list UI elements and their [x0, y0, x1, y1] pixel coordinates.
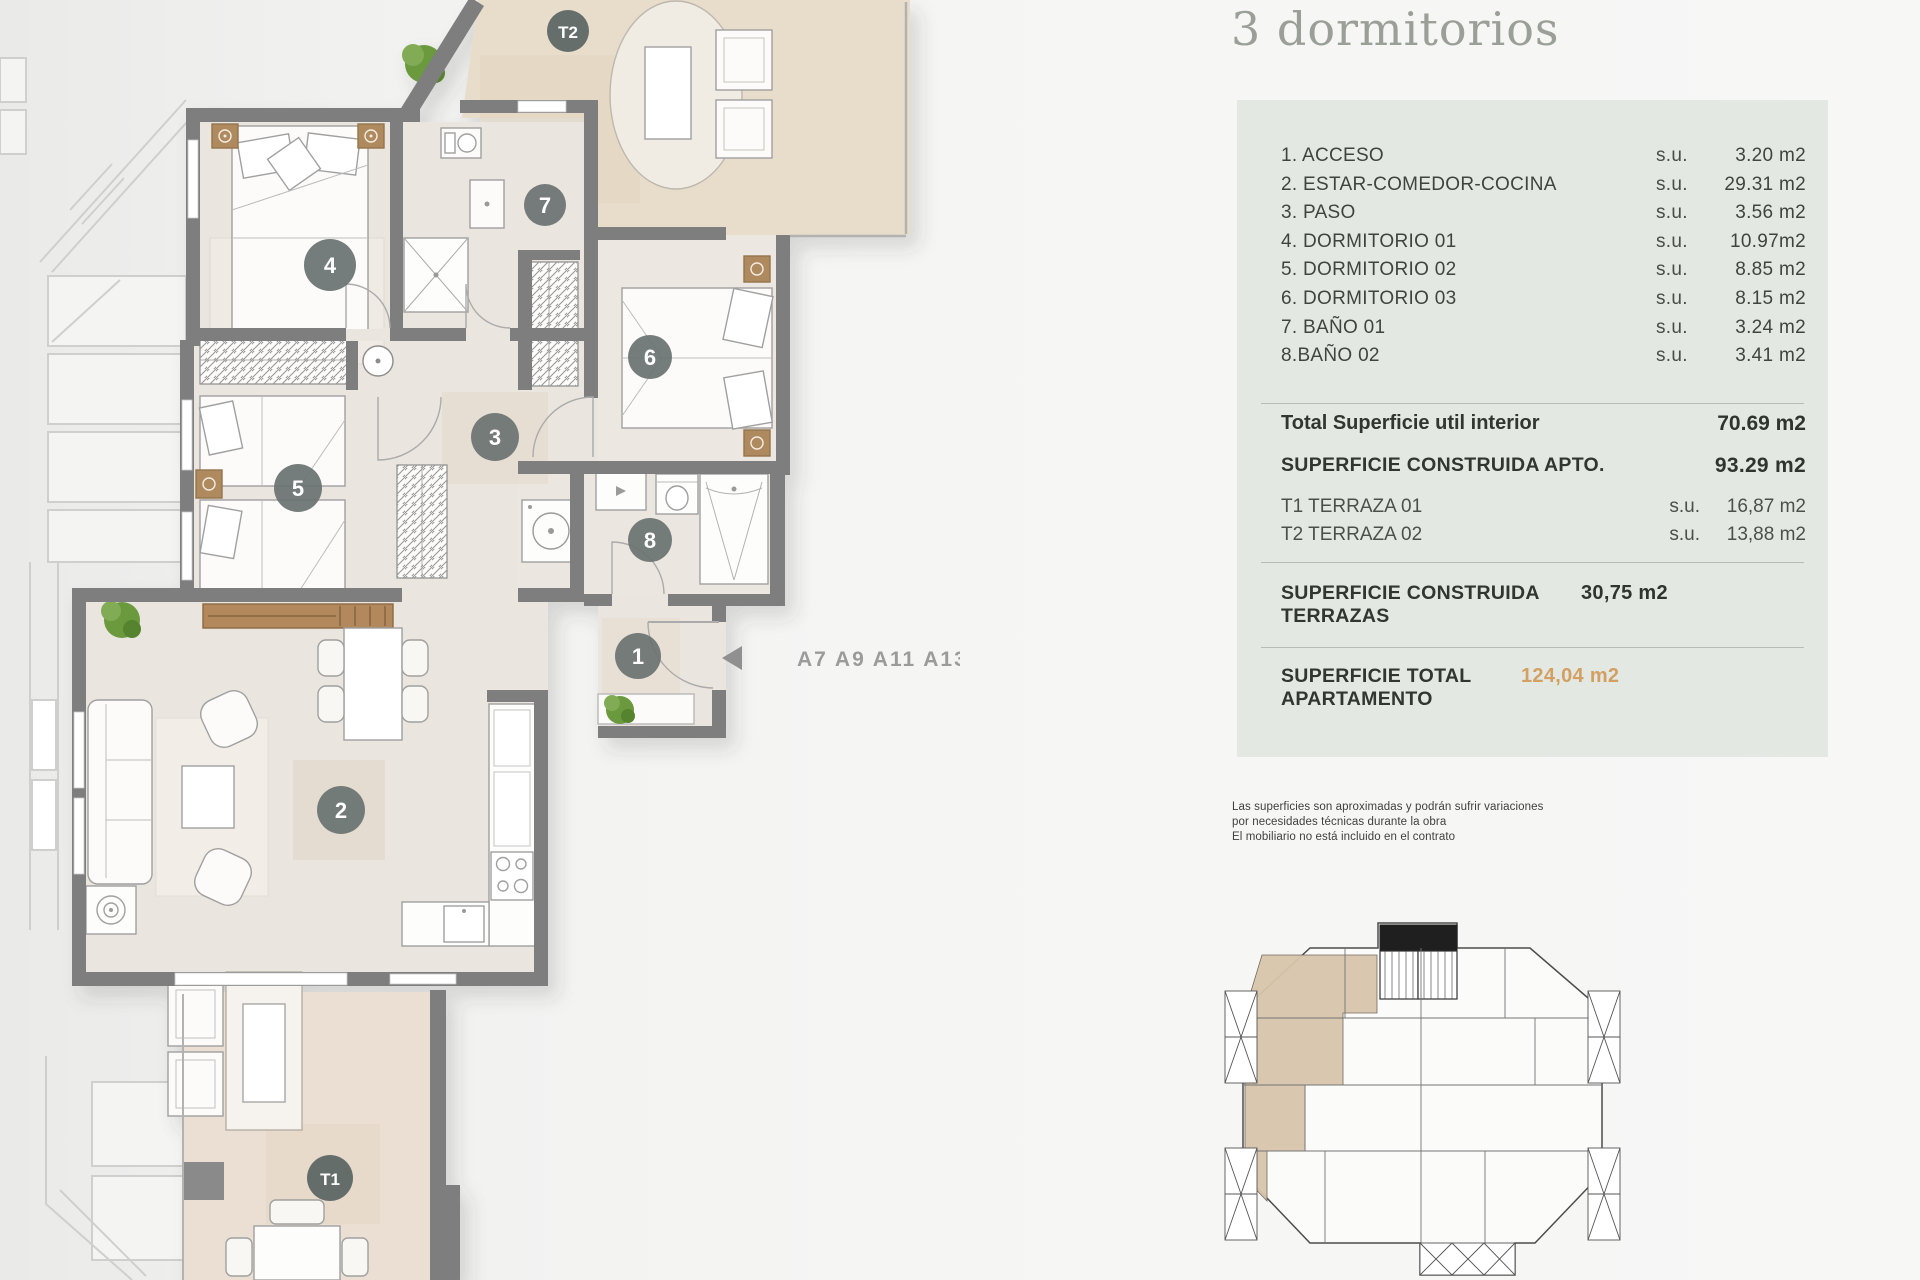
terrace-circle-t1: T1 — [307, 1155, 353, 1201]
svg-text:4: 4 — [324, 253, 337, 278]
table-row: 8.BAÑO 02 s.u. 3.41 m2 — [1281, 345, 1806, 374]
outdoor-table — [254, 1226, 340, 1280]
outdoor-chair — [226, 1238, 252, 1276]
nightstand — [196, 470, 222, 498]
sideboard — [203, 604, 393, 628]
elevator-core — [1380, 925, 1457, 999]
svg-text:8: 8 — [644, 528, 656, 553]
nightstand — [358, 124, 384, 148]
outdoor-table — [645, 47, 691, 139]
table-row: 1. ACCESO s.u. 3.20 m2 — [1281, 145, 1806, 174]
unit-pointer: A7 A9 A11 A13 — [722, 646, 960, 671]
room-circle-3: 3 — [471, 413, 519, 461]
table-row: 6. DORMITORIO 03 s.u. 8.15 m2 — [1281, 288, 1806, 317]
brochure-page: 1 2 3 4 5 6 7 8 — [0, 0, 1920, 1280]
svg-text:T2: T2 — [558, 23, 578, 42]
sun-lounger — [226, 972, 302, 1130]
room-circle-5: 5 — [274, 464, 322, 512]
total-interior-row: Total Superficie util interior 70.69 m2 — [1281, 412, 1806, 436]
room-area-list: 1. ACCESO s.u. 3.20 m2 2. ESTAR-COMEDOR-… — [1281, 145, 1806, 374]
area-table-card: 1. ACCESO s.u. 3.20 m2 2. ESTAR-COMEDOR-… — [1237, 100, 1828, 757]
terrace-circle-t2: T2 — [547, 10, 589, 52]
svg-text:7: 7 — [539, 193, 551, 218]
dining-chair — [318, 640, 344, 676]
toilet — [441, 128, 481, 158]
room-circle-1: 1 — [615, 633, 661, 679]
svg-text:1: 1 — [632, 644, 644, 669]
ceiling-lamp — [363, 346, 393, 376]
divider — [1261, 403, 1804, 404]
total-value: 124,04 m2 — [1521, 665, 1619, 688]
outdoor-mat — [184, 1162, 224, 1200]
wardrobe — [200, 336, 352, 384]
terraza-row: T1 TERRAZA 01 s.u. 16,87 m2 — [1281, 496, 1806, 518]
construida-terrazas-row: SUPERFICIE CONSTRUIDA TERRAZAS 30,75 m2 — [1281, 582, 1806, 628]
nightstand — [212, 124, 238, 148]
svg-text:T1: T1 — [320, 1170, 340, 1189]
shower — [700, 474, 768, 584]
building-key-plan — [1205, 893, 1640, 1280]
room-circle-6: 6 — [628, 335, 672, 379]
wardrobe — [397, 465, 447, 578]
nightstand — [744, 256, 770, 282]
svg-text:5: 5 — [292, 476, 304, 501]
svg-text:6: 6 — [644, 345, 656, 370]
divider — [1261, 647, 1804, 648]
disclaimer: Las superficies son aproximadas y podrán… — [1232, 800, 1592, 845]
room-circle-8: 8 — [628, 518, 672, 562]
divider — [1261, 562, 1804, 563]
total-apartamento-row: SUPERFICIE TOTAL APARTAMENTO 124,04 m2 — [1281, 665, 1806, 711]
svg-text:2: 2 — [335, 798, 347, 823]
washbasin — [596, 472, 646, 510]
terraza-row: T2 TERRAZA 02 s.u. 13,88 m2 — [1281, 524, 1806, 546]
table-row: 7. BAÑO 01 s.u. 3.24 m2 — [1281, 317, 1806, 346]
sofa — [88, 700, 152, 884]
unit-codes: A7 A9 A11 A13 — [797, 648, 960, 671]
dining-chair — [318, 686, 344, 722]
svg-text:3: 3 — [489, 425, 501, 450]
toilet — [656, 474, 698, 514]
floor-plan: 1 2 3 4 5 6 7 8 — [0, 0, 960, 1280]
outdoor-chair — [270, 1200, 324, 1224]
room-circle-2: 2 — [317, 786, 365, 834]
shower — [404, 238, 468, 312]
dining-table — [344, 628, 402, 740]
sliding-door — [518, 101, 566, 112]
room-circle-4: 4 — [304, 239, 356, 291]
construida-apto-row: SUPERFICIE CONSTRUIDA APTO. 93.29 m2 — [1281, 454, 1806, 478]
dining-chair — [402, 640, 428, 676]
coffee-table — [182, 766, 234, 828]
table-row: 3. PASO s.u. 3.56 m2 — [1281, 202, 1806, 231]
dining-chair — [402, 686, 428, 722]
room-circle-7: 7 — [524, 184, 566, 226]
nightstand — [744, 430, 770, 456]
table-row: 4. DORMITORIO 01 s.u. 10.97m2 — [1281, 231, 1806, 260]
outdoor-chair — [342, 1238, 368, 1276]
floor-lamp — [86, 886, 136, 934]
sliding-door — [175, 973, 347, 985]
page-title: 3 dormitorios — [1231, 2, 1831, 56]
table-row: 5. DORMITORIO 02 s.u. 8.85 m2 — [1281, 259, 1806, 288]
table-row: 2. ESTAR-COMEDOR-COCINA s.u. 29.31 m2 — [1281, 174, 1806, 203]
